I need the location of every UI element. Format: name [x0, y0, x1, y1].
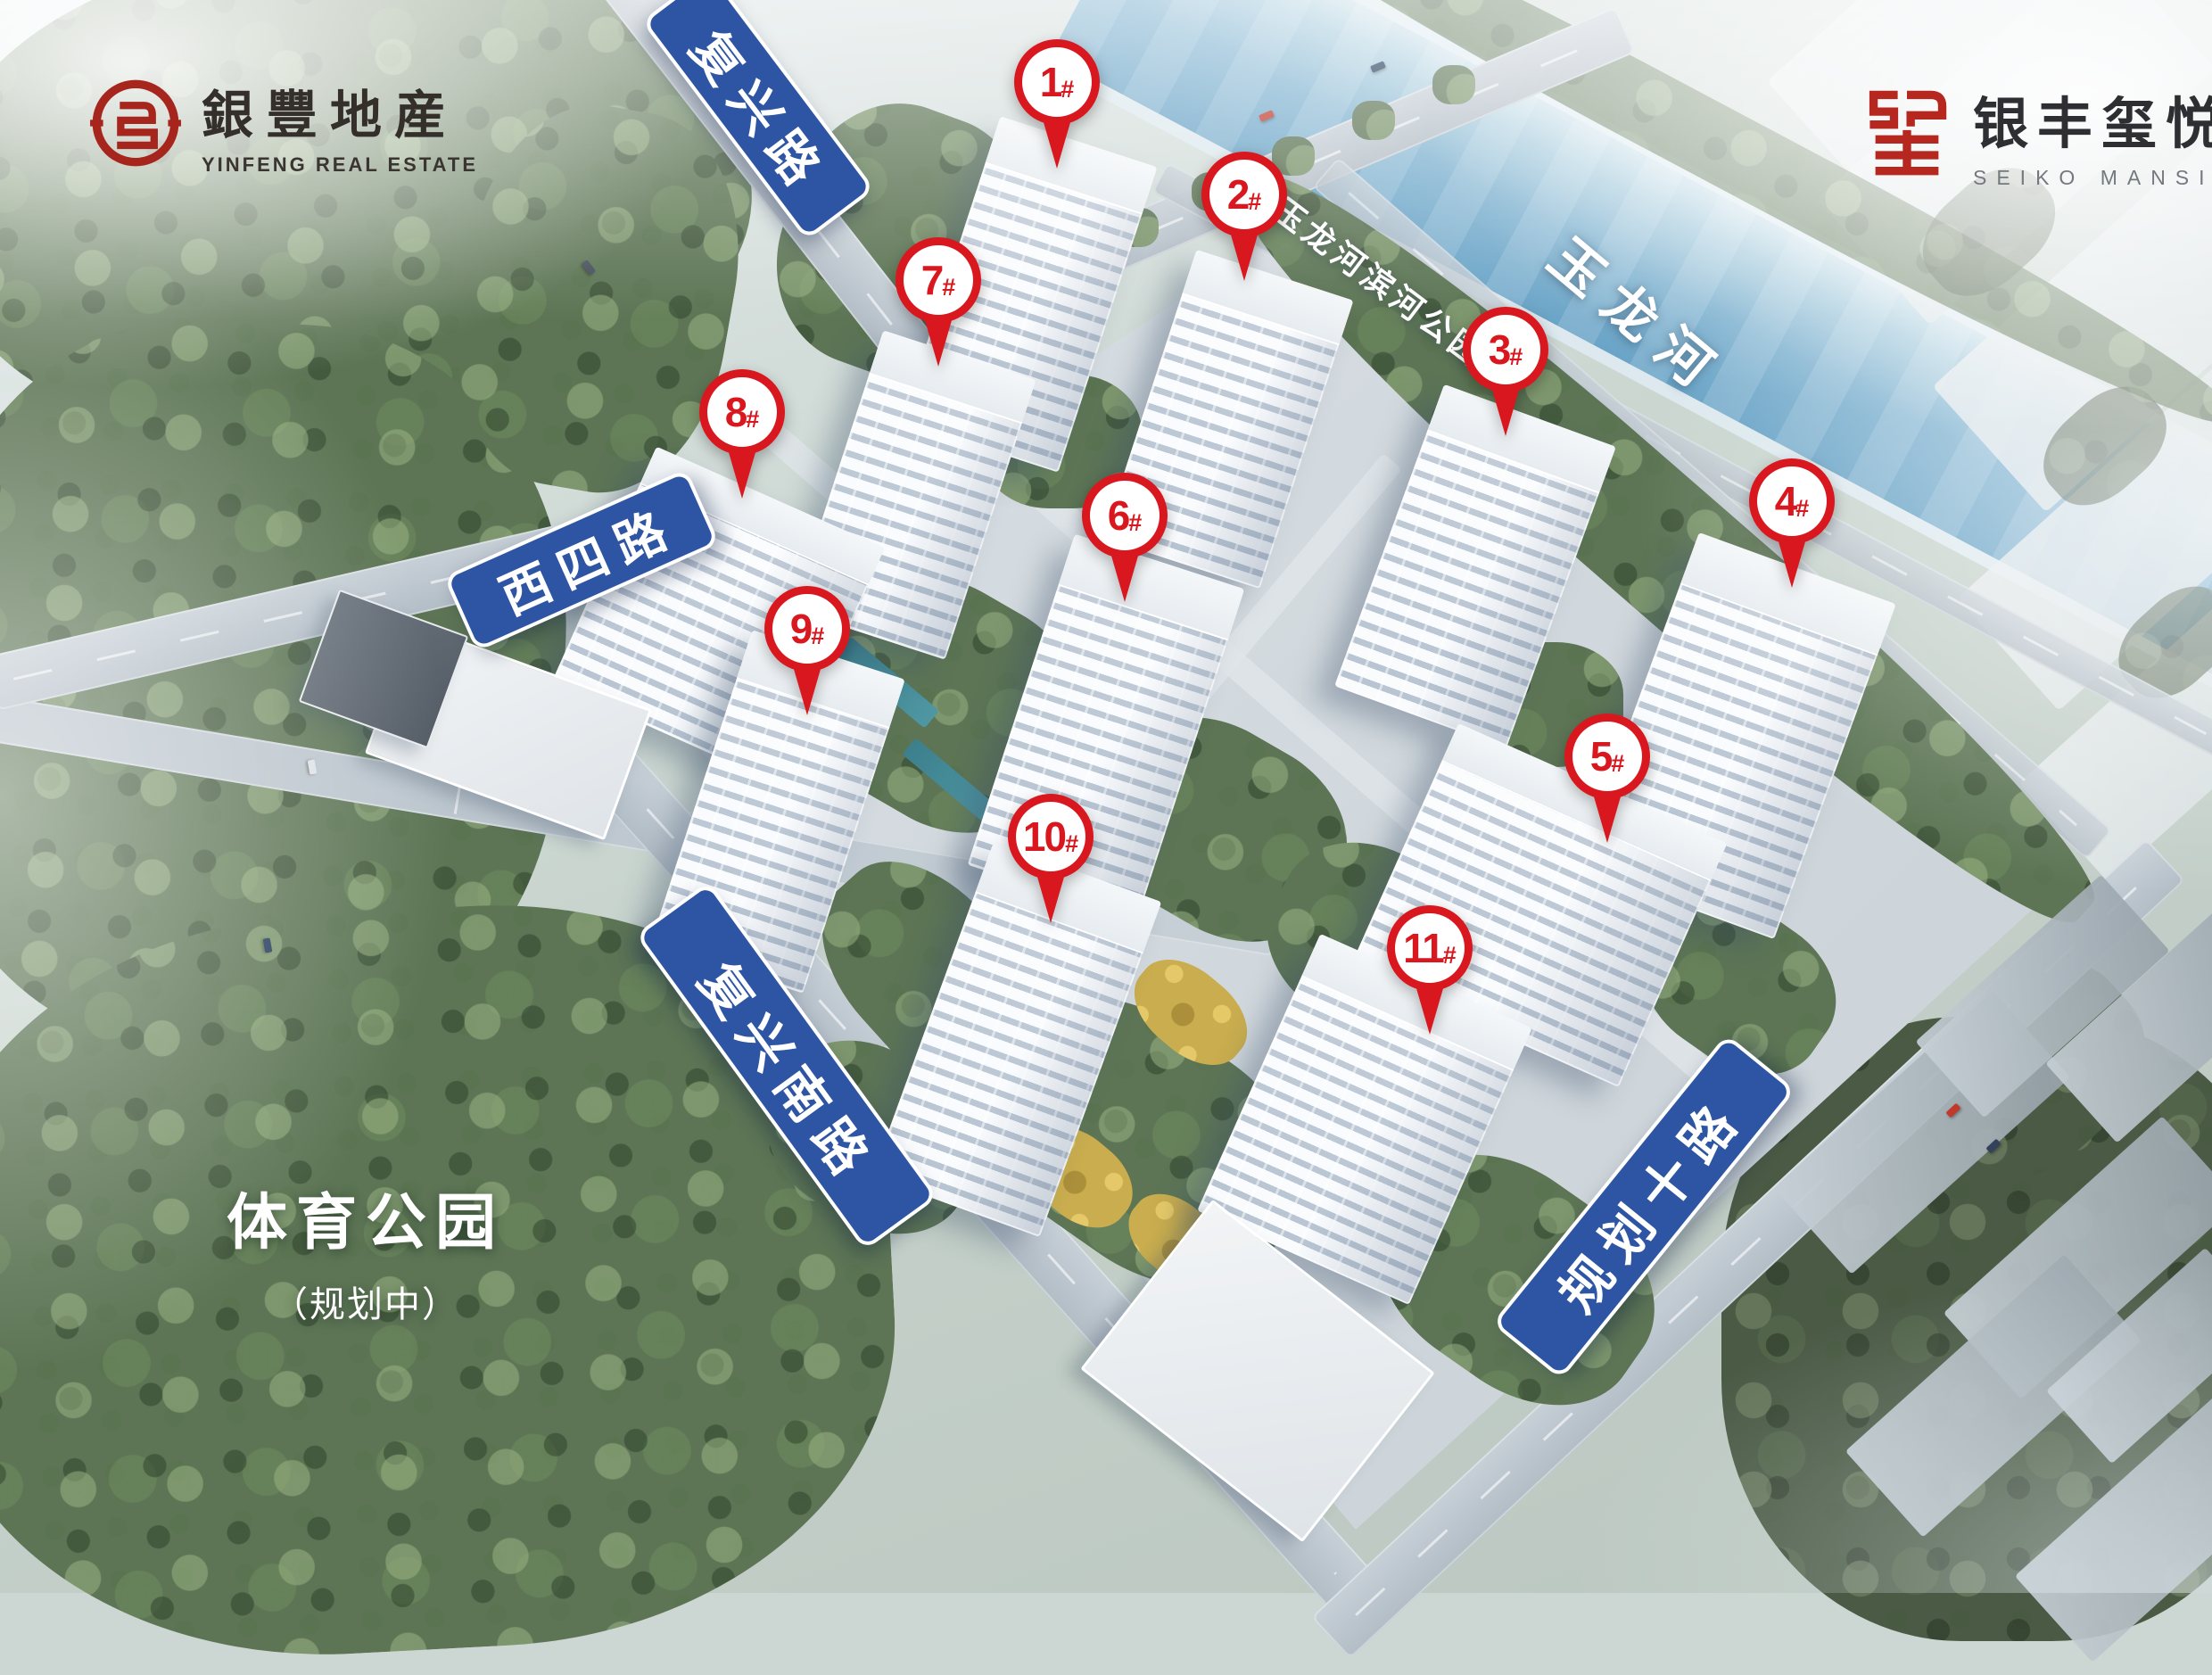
marker-pointer	[920, 315, 957, 367]
building-marker-6: 6#	[1073, 473, 1176, 602]
marker-number: 9	[790, 608, 812, 649]
marker-number: 8	[725, 392, 747, 433]
marker-circle: 8#	[699, 369, 785, 455]
marker-hash: #	[1795, 495, 1809, 523]
marker-hash: #	[1061, 76, 1074, 103]
building-marker-10: 10#	[999, 794, 1102, 923]
marker-number: 6	[1108, 495, 1129, 536]
marker-number: 10	[1023, 816, 1065, 857]
marker-number: 1	[1040, 62, 1061, 103]
marker-hash: #	[811, 623, 824, 650]
marker-pointer	[1411, 983, 1449, 1035]
developer-logo: 銀豐地産 YINFENG REAL ESTATE	[89, 73, 478, 177]
marker-pointer	[1226, 229, 1263, 281]
marker-hash: #	[1128, 509, 1142, 537]
street-tree	[1432, 65, 1475, 104]
sports-park-label: 体育公园 （规划中）	[214, 1173, 517, 1327]
marker-pointer	[1773, 536, 1811, 588]
building-marker-5: 5#	[1556, 714, 1659, 843]
marker-number: 4	[1775, 481, 1796, 522]
marker-circle: 5#	[1564, 714, 1650, 799]
marker-pointer	[1032, 871, 1069, 923]
yinfeng-seal-icon	[89, 77, 182, 174]
building-marker-1: 1#	[1005, 39, 1109, 169]
marker-pointer	[723, 447, 761, 499]
marker-hash: #	[746, 406, 759, 433]
marker-number: 11	[1403, 928, 1443, 969]
street-tree	[1352, 101, 1395, 140]
developer-name-cn: 銀豐地産	[202, 73, 478, 148]
project-name-cn: 银丰玺悦	[1973, 78, 2212, 159]
marker-circle: 1#	[1014, 39, 1100, 125]
marker-pointer	[1589, 791, 1626, 843]
building-marker-9: 9#	[755, 586, 859, 715]
building-marker-4: 4#	[1740, 458, 1844, 588]
marker-hash: #	[1065, 830, 1078, 858]
project-logo: 银丰玺悦 SEIKO MANSION	[1861, 78, 2212, 190]
marker-circle: 3#	[1463, 307, 1548, 392]
marker-number: 7	[921, 260, 943, 301]
seiko-mansion-seal-icon	[1861, 86, 1953, 183]
marker-pointer	[788, 664, 826, 715]
project-name-en: SEIKO MANSION	[1973, 166, 2212, 190]
marker-circle: 6#	[1082, 473, 1168, 558]
aerial-site-plan: { "header": { "logo_left": { "cn": "銀豐地産…	[0, 0, 2212, 1593]
sports-park-note: （规划中）	[214, 1275, 517, 1327]
marker-pointer	[1038, 117, 1076, 169]
marker-pointer	[1487, 384, 1524, 436]
building-marker-2: 2#	[1193, 152, 1296, 281]
marker-number: 5	[1590, 736, 1612, 777]
marker-circle: 9#	[764, 586, 850, 672]
marker-pointer	[1106, 550, 1143, 602]
building-marker-7: 7#	[887, 237, 990, 367]
marker-hash: #	[1611, 750, 1624, 778]
sports-park-title: 体育公园	[214, 1173, 517, 1261]
marker-circle: 4#	[1749, 458, 1835, 544]
marker-circle: 10#	[1008, 794, 1094, 879]
marker-hash: #	[1509, 343, 1523, 371]
marker-circle: 2#	[1201, 152, 1287, 237]
building-marker-3: 3#	[1454, 307, 1557, 436]
marker-number: 2	[1227, 174, 1249, 215]
marker-circle: 7#	[896, 237, 981, 323]
marker-circle: 11#	[1387, 905, 1473, 991]
developer-name-en: YINFENG REAL ESTATE	[202, 153, 478, 177]
marker-number: 3	[1489, 329, 1510, 370]
building-marker-8: 8#	[690, 369, 794, 499]
marker-hash: #	[1248, 188, 1261, 216]
marker-hash: #	[1443, 942, 1457, 970]
building-marker-11: 11#	[1378, 905, 1482, 1035]
marker-hash: #	[942, 274, 955, 301]
